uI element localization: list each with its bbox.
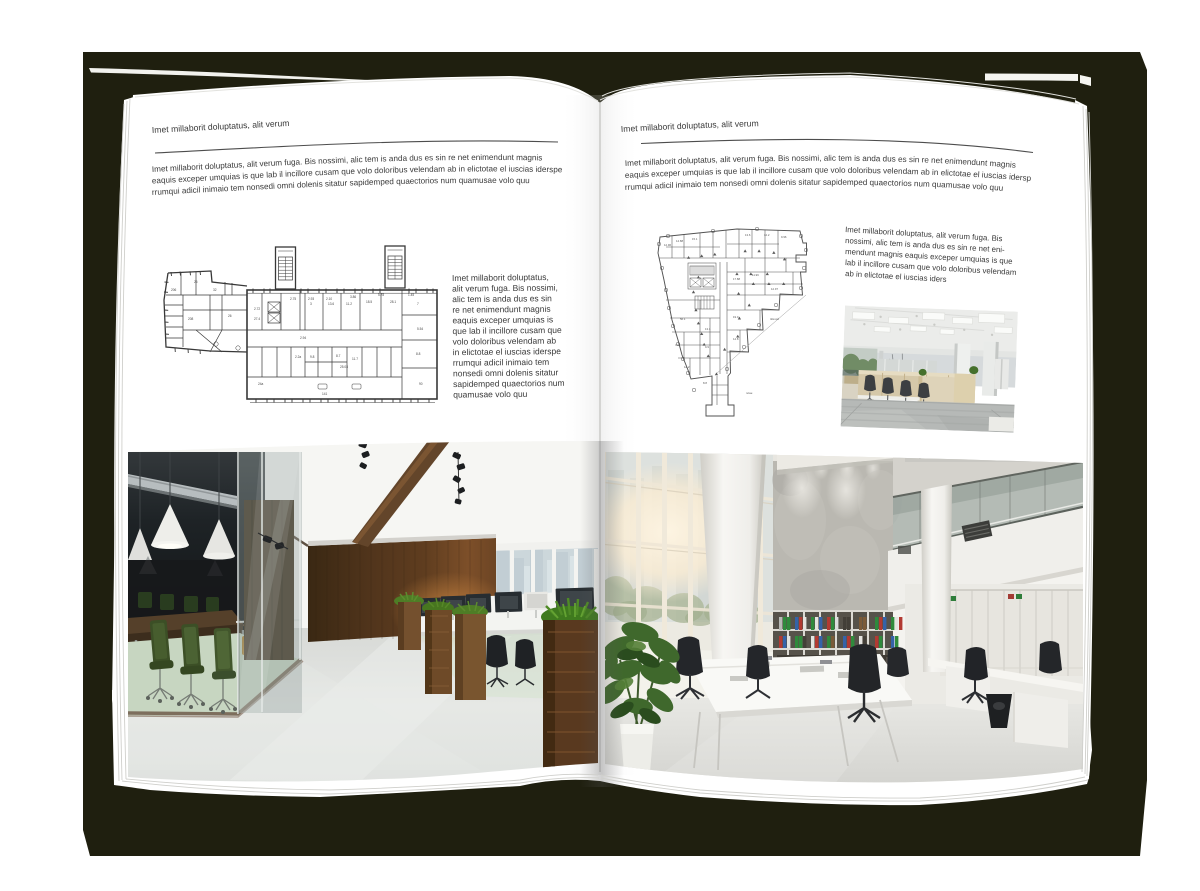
- svg-text:11.7: 11.7: [352, 357, 358, 361]
- svg-text:19.0: 19.0: [733, 315, 739, 319]
- svg-text:2.94: 2.94: [300, 336, 306, 340]
- svg-text:5.78: 5.78: [378, 293, 384, 297]
- svg-text:9.8: 9.8: [310, 355, 315, 359]
- svg-text:27.4: 27.4: [254, 317, 260, 321]
- svg-text:5.54: 5.54: [417, 327, 423, 331]
- svg-text:2.75: 2.75: [290, 297, 296, 301]
- svg-text:14.88: 14.88: [676, 239, 683, 243]
- svg-text:32: 32: [213, 288, 217, 292]
- svg-text:8.8: 8.8: [416, 352, 421, 356]
- svg-text:208: 208: [188, 317, 194, 321]
- svg-text:que lab il incillore cusam que: que lab il incillore cusam que: [452, 325, 562, 336]
- svg-text:26: 26: [194, 280, 198, 284]
- svg-text:in elictotae el iuscias idersp: in elictotae el iuscias iderspe: [453, 346, 562, 357]
- svg-text:12.2: 12.2: [764, 233, 770, 237]
- svg-text:56.1: 56.1: [680, 317, 686, 321]
- svg-text:eaquis exceper umquias is: eaquis exceper umquias is: [452, 314, 553, 325]
- svg-text:3: 3: [310, 302, 312, 306]
- svg-text:14.8: 14.8: [733, 337, 739, 341]
- svg-text:Imet millaborit doluptatus,: Imet millaborit doluptatus,: [452, 272, 549, 283]
- svg-text:26: 26: [228, 314, 232, 318]
- svg-text:план: план: [746, 391, 753, 395]
- svg-text:re net enimendunt magnis: re net enimendunt magnis: [452, 304, 550, 315]
- svg-text:206: 206: [171, 288, 177, 292]
- svg-text:quamusae volo quu: quamusae volo quu: [453, 389, 528, 400]
- svg-text:9.9: 9.9: [705, 345, 709, 349]
- svg-text:141: 141: [322, 392, 328, 396]
- svg-text:rrumqui adicil inimaio tem: rrumqui adicil inimaio tem: [453, 357, 549, 368]
- svg-text:volo doloribus velendam ab: volo doloribus velendam ab: [453, 336, 557, 347]
- svg-text:8.8: 8.8: [703, 381, 707, 385]
- svg-text:28.1: 28.1: [390, 300, 396, 304]
- svg-text:3.86: 3.86: [350, 295, 356, 299]
- svg-text:8.7: 8.7: [336, 354, 341, 358]
- svg-text:12.96: 12.96: [664, 243, 671, 247]
- svg-text:1.45: 1.45: [408, 293, 414, 297]
- svg-text:alit verum fuga. Bis nossimi,: alit verum fuga. Bis nossimi,: [452, 282, 558, 293]
- svg-text:2.93: 2.93: [308, 297, 314, 301]
- svg-text:nonsedi omni dolenis sitatur: nonsedi omni dolenis sitatur: [453, 367, 559, 378]
- svg-text:25.08: 25.08: [340, 365, 348, 369]
- svg-text:alic tem is anda dus es sin: alic tem is anda dus es sin: [452, 293, 552, 304]
- svg-text:Жилой: Жилой: [770, 317, 779, 321]
- svg-text:90: 90: [419, 382, 423, 386]
- svg-text:13.6: 13.6: [745, 233, 751, 237]
- svg-text:15.1: 15.1: [692, 237, 698, 241]
- svg-text:7: 7: [417, 302, 419, 306]
- svg-text:11.96: 11.96: [752, 273, 759, 277]
- svg-text:12.97: 12.97: [771, 287, 778, 291]
- svg-text:18.5: 18.5: [366, 300, 372, 304]
- svg-text:13.6: 13.6: [328, 302, 334, 306]
- svg-text:13.1: 13.1: [705, 327, 711, 331]
- svg-text:11.2: 11.2: [346, 302, 352, 306]
- svg-text:sapidemped quaectorios num: sapidemped quaectorios num: [453, 378, 565, 389]
- svg-text:24a: 24a: [258, 382, 264, 386]
- svg-text:2.72: 2.72: [254, 307, 260, 311]
- svg-text:17.88: 17.88: [733, 277, 740, 281]
- svg-text:2.10: 2.10: [326, 297, 332, 301]
- svg-text:9.96: 9.96: [781, 235, 787, 239]
- svg-text:2.2a: 2.2a: [295, 355, 301, 359]
- svg-text:12.2: 12.2: [684, 365, 690, 369]
